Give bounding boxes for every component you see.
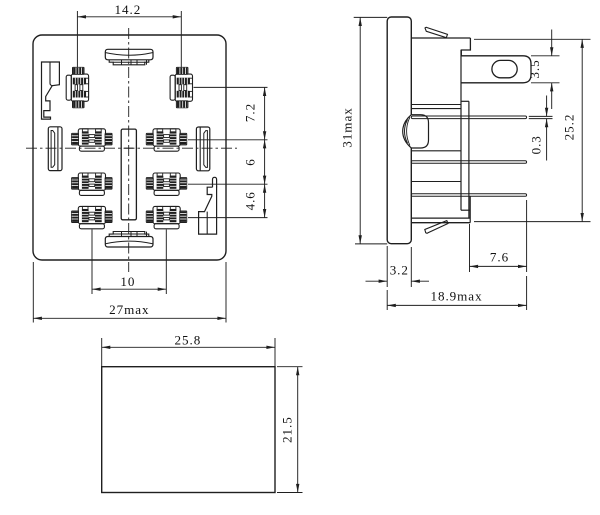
svg-text:0.3: 0.3	[529, 135, 544, 154]
svg-text:7.2: 7.2	[243, 103, 258, 122]
svg-text:3.5: 3.5	[527, 59, 542, 78]
svg-text:25.8: 25.8	[175, 332, 202, 347]
svg-text:7.6: 7.6	[490, 250, 509, 265]
svg-text:6: 6	[243, 158, 258, 166]
svg-text:14.2: 14.2	[115, 2, 142, 17]
svg-text:25.2: 25.2	[562, 114, 577, 141]
svg-text:21.5: 21.5	[279, 416, 294, 443]
svg-text:18.9max: 18.9max	[430, 288, 482, 303]
svg-text:31max: 31max	[339, 107, 354, 147]
svg-text:4.6: 4.6	[243, 191, 258, 210]
svg-text:27max: 27max	[109, 302, 149, 317]
svg-text:3.2: 3.2	[390, 263, 409, 278]
svg-text:10: 10	[120, 274, 135, 289]
